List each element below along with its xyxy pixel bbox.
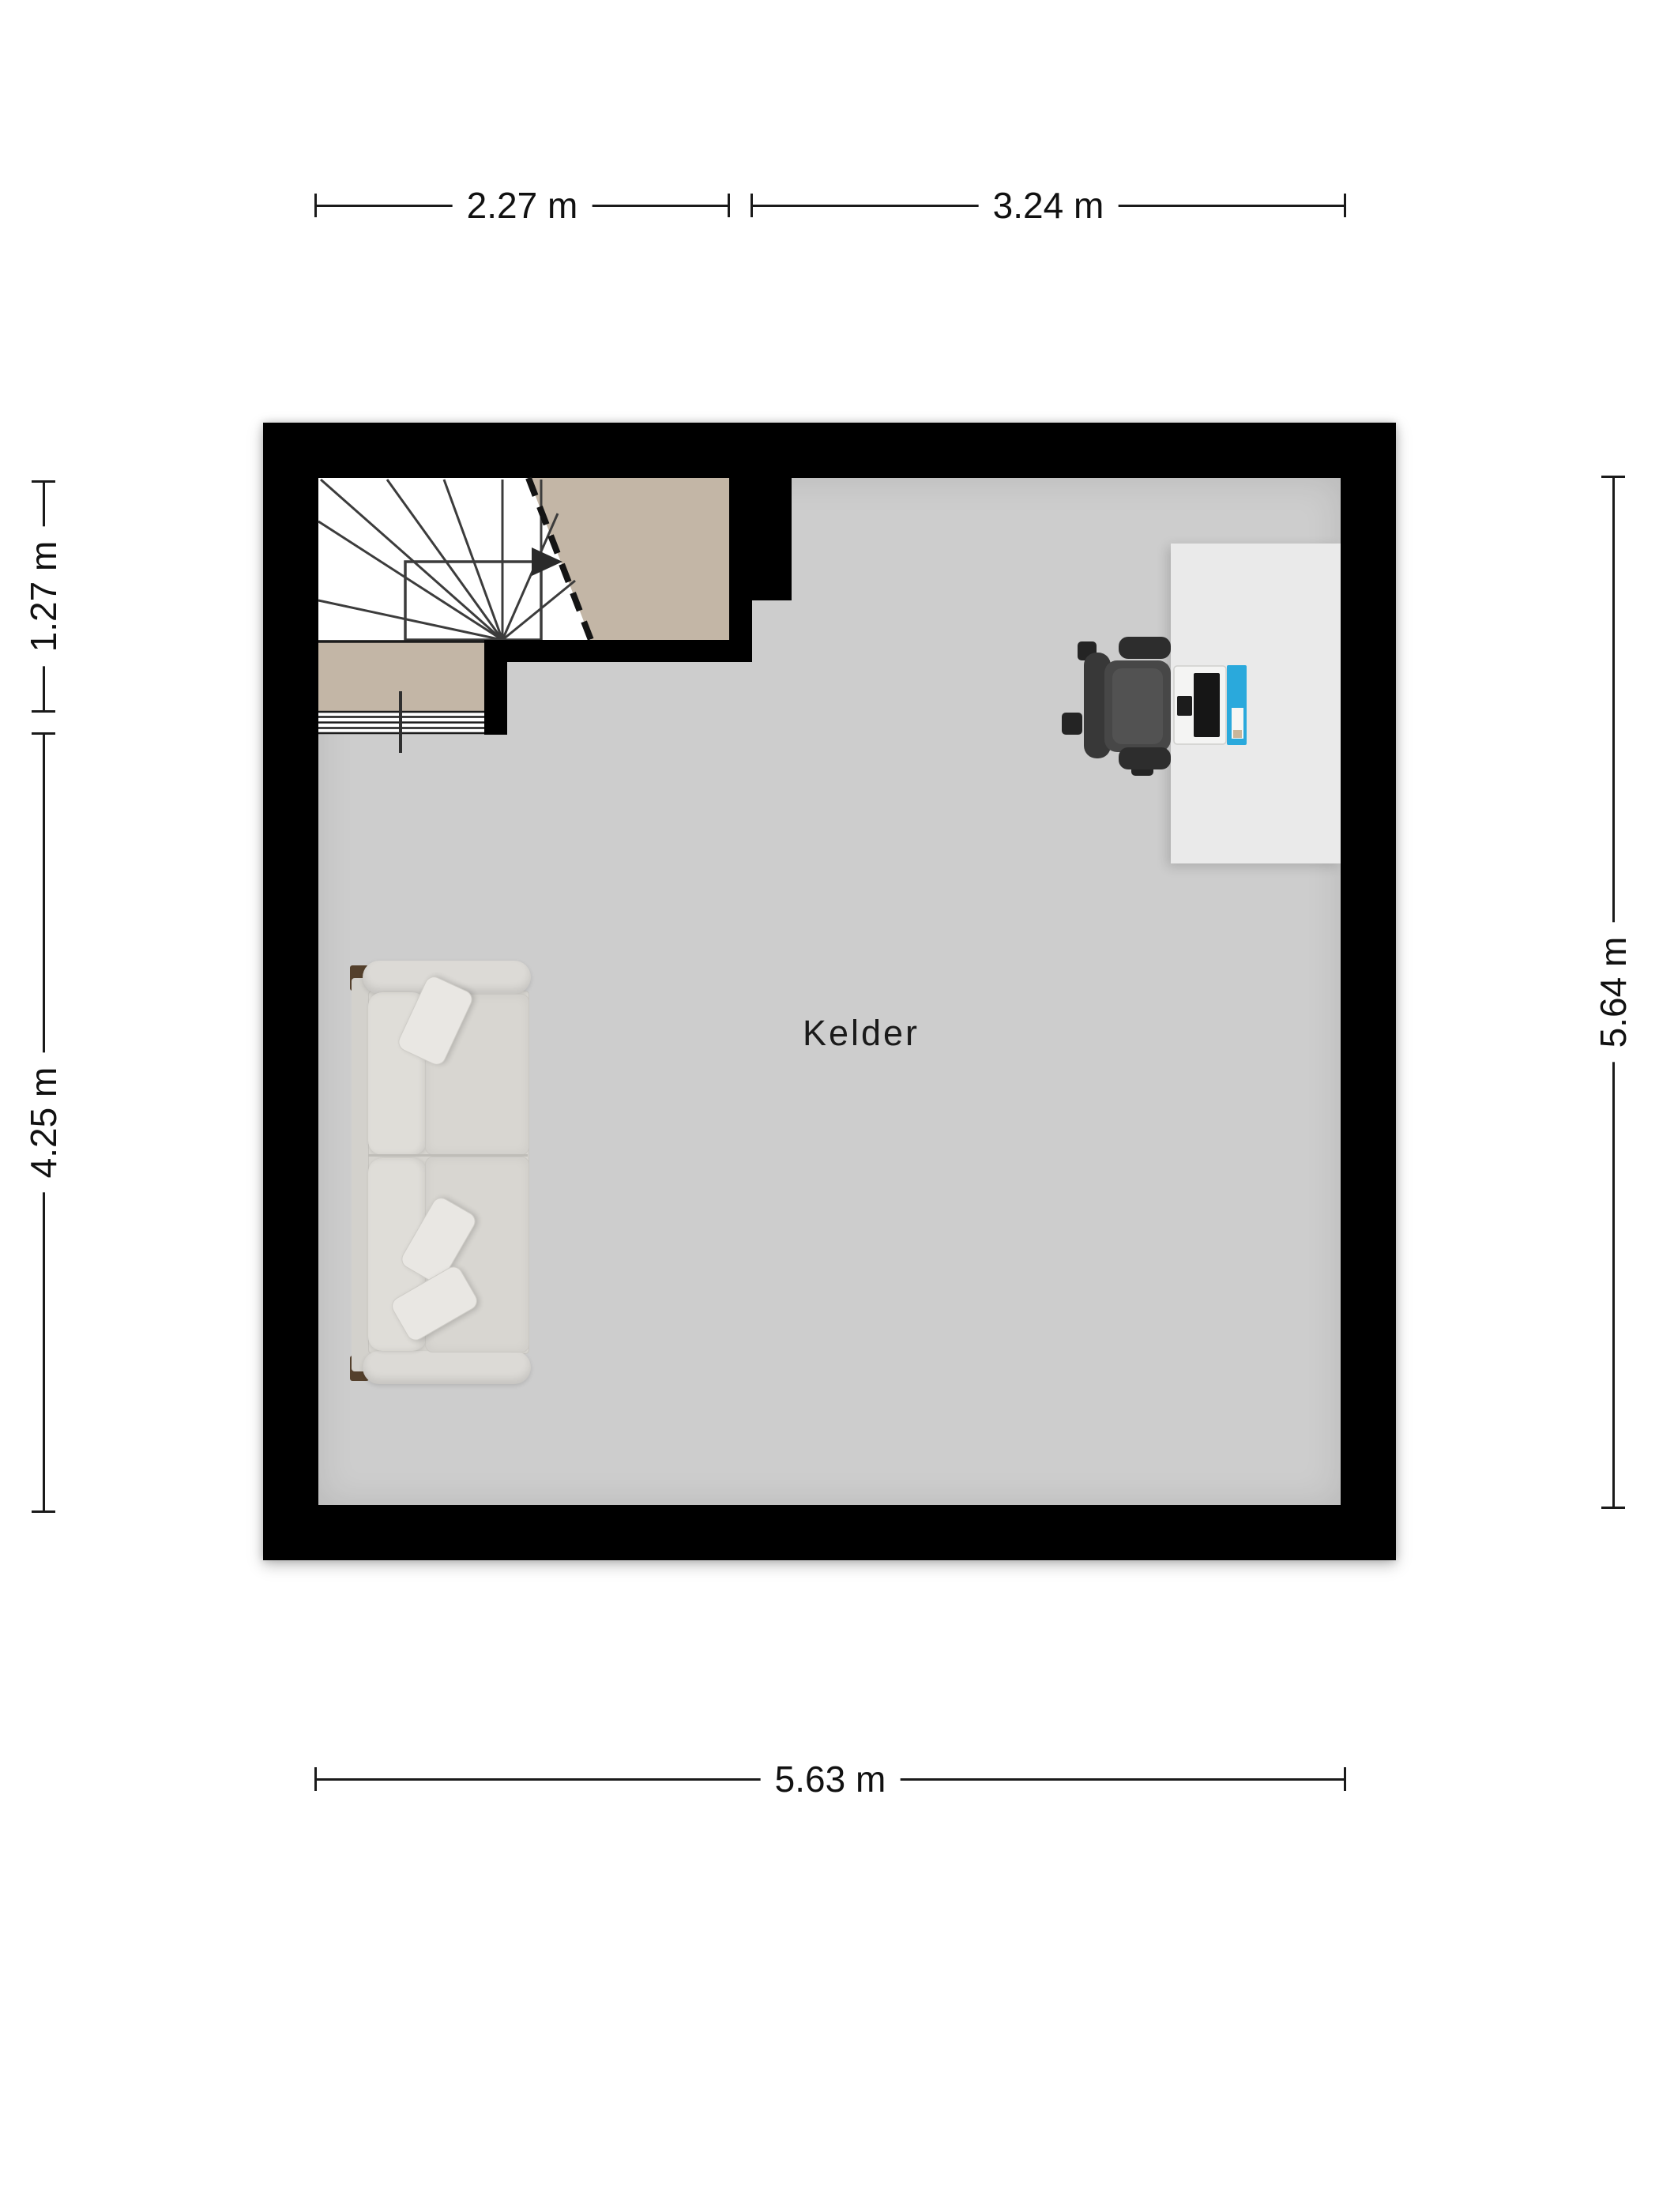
- dimension-bottom-room: 5.63 m: [314, 1767, 1346, 1791]
- dimension-label: 4.25 m: [22, 1053, 65, 1193]
- dimension-label: 1.27 m: [22, 527, 65, 667]
- dimension-left-room: 4.25 m: [32, 732, 55, 1513]
- dimension-right-room: 5.64 m: [1601, 476, 1625, 1509]
- dimension-label: 2.27 m: [453, 184, 592, 227]
- sofa-armrest: [363, 1351, 531, 1384]
- dimension-label: 5.63 m: [761, 1758, 901, 1800]
- stair-enclosure: [318, 478, 729, 640]
- dimension-top-room: 3.24 m: [750, 194, 1346, 217]
- dimension-label: 5.64 m: [1592, 923, 1635, 1063]
- dimension-label: 3.24 m: [979, 184, 1119, 227]
- room-label: Kelder: [750, 1013, 972, 1054]
- dimension-top-stairs: 2.27 m: [314, 194, 730, 217]
- dimension-left-stairs: 1.27 m: [32, 480, 55, 713]
- desk: [1171, 544, 1341, 863]
